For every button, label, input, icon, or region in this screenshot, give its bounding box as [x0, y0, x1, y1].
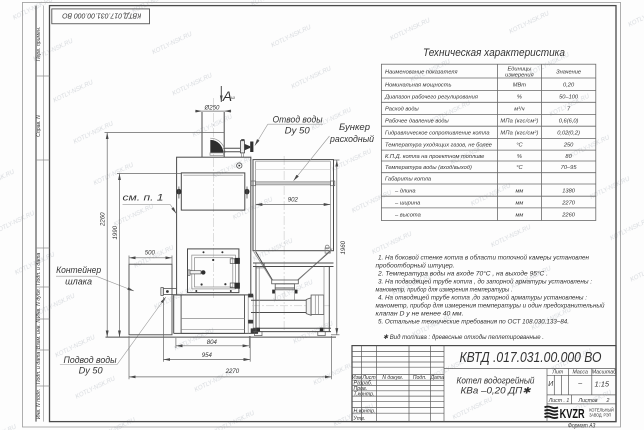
svg-text:2270: 2270: [561, 200, 575, 206]
svg-text:– высота: – высота: [394, 212, 421, 218]
svg-text:5. Остальные технические треб: 5. Остальные технические требования по О…: [378, 317, 569, 325]
svg-text:Масса: Масса: [573, 370, 588, 376]
svg-text:Наименование показателя: Наименование показателя: [385, 70, 458, 76]
svg-text:0,6(6,0): 0,6(6,0): [559, 119, 579, 125]
svg-text:2260: 2260: [561, 212, 575, 218]
svg-text:Масштаб: Масштаб: [592, 370, 617, 376]
svg-text:Листов: Листов: [578, 398, 598, 404]
svg-text:KVZR: KVZR: [560, 406, 585, 421]
svg-text:ЗАВОД. РЭП: ЗАВОД. РЭП: [589, 412, 611, 417]
svg-text:– ширина: – ширина: [394, 200, 420, 206]
svg-text:МВт: МВт: [513, 83, 527, 89]
svg-text:КВТД .017.031.00.000 ВО: КВТД .017.031.00.000 ВО: [460, 349, 602, 366]
svg-text:0,02(0,2): 0,02(0,2): [557, 131, 580, 137]
svg-text:500: 500: [145, 250, 156, 257]
svg-text:Подп. и дата: Подп. и дата: [36, 253, 42, 286]
svg-text:Рабочее давление воды: Рабочее давление воды: [385, 119, 450, 125]
svg-text:Перв. примен.: Перв. примен.: [36, 27, 42, 61]
svg-text:2260: 2260: [100, 212, 107, 227]
svg-text:мм: мм: [515, 212, 523, 218]
svg-text:клапан D у не менее 40 мм.: клапан D у не менее 40 мм.: [376, 310, 464, 317]
svg-text:Dy 50: Dy 50: [79, 366, 104, 376]
svg-text:измерения: измерения: [505, 73, 533, 79]
svg-text:2270: 2270: [225, 368, 240, 375]
svg-text:Dy 50: Dy 50: [285, 125, 311, 135]
svg-text:80: 80: [565, 154, 572, 160]
svg-text:Расход воды: Расход воды: [385, 107, 419, 113]
svg-text:К.П.Д. котла на проектном топл: К.П.Д. котла на проектном топливе: [385, 154, 484, 160]
svg-text:Контейнер: Контейнер: [56, 265, 101, 275]
svg-text:МПа (кгс/см²): МПа (кгс/см²): [500, 131, 538, 137]
svg-text:Номинальная мощность: Номинальная мощность: [385, 83, 451, 89]
svg-text:1990: 1990: [112, 225, 119, 239]
svg-text:КВТД.017.031.00.000 ВО: КВТД.017.031.00.000 ВО: [62, 11, 141, 20]
svg-text:Инв. N дубл.: Инв. N дубл.: [36, 288, 42, 318]
svg-text:–: –: [577, 380, 582, 387]
svg-text:пробоотборный штуцер.: пробоотборный штуцер.: [376, 262, 455, 270]
svg-text:расходный: расходный: [329, 134, 374, 144]
svg-text:°С: °С: [516, 165, 523, 171]
svg-text:N докум.: N докум.: [382, 375, 403, 381]
svg-text:см. п. 1: см. п. 1: [123, 193, 164, 203]
svg-text:МПа (кгс/см²): МПа (кгс/см²): [500, 119, 538, 125]
svg-text:Диапазон рабочего регулировани: Диапазон рабочего регулирования: [384, 95, 478, 101]
svg-text:манометр, прибор для измерени: манометр, прибор для измерения температу…: [376, 301, 605, 309]
svg-text:Температура уходящих газов, не: Температура уходящих газов, не более: [385, 143, 492, 149]
svg-text:%: %: [517, 95, 522, 101]
svg-text:1960: 1960: [340, 240, 347, 254]
svg-text:°С: °С: [516, 143, 523, 149]
svg-text:Лист . 1: Лист . 1: [548, 398, 570, 404]
svg-text:Утв.: Утв.: [354, 416, 366, 422]
svg-text:ш: ш: [231, 95, 235, 100]
svg-text:Подп.: Подп.: [413, 375, 427, 381]
svg-text:Значение: Значение: [556, 70, 581, 76]
svg-text:1380: 1380: [562, 188, 575, 194]
svg-text:Подп. и дата: Подп. и дата: [36, 352, 42, 385]
svg-text:Бункер: Бункер: [339, 122, 370, 132]
svg-text:мм: мм: [515, 200, 523, 206]
svg-text:Справ. N: Справ. N: [36, 115, 42, 137]
svg-text:Формат А3: Формат А3: [568, 423, 596, 430]
svg-text:1. На боковой стенке котла в: 1. На боковой стенке котла в области топ…: [378, 254, 590, 262]
svg-text:804: 804: [207, 339, 218, 346]
svg-text:Инв. N подл.: Инв. N подл.: [36, 389, 42, 419]
svg-text:Котел водогрейный: Котел водогрейный: [457, 376, 535, 386]
svg-text:Н.контр.: Н.контр.: [354, 409, 376, 415]
svg-text:манометр, прибор для измерени: манометр, прибор для измерения температу…: [376, 286, 513, 294]
svg-text:шлака: шлака: [65, 277, 92, 287]
svg-text:3. На подводящей трубе котла: 3. На подводящей трубе котла , до запорн…: [378, 278, 592, 286]
svg-text:2: 2: [606, 398, 610, 404]
svg-text:Лит: Лит: [551, 370, 563, 376]
svg-text:м³/ч: м³/ч: [514, 107, 524, 113]
svg-text:1:15: 1:15: [594, 380, 609, 389]
svg-text:4. На отводящей трубе котла ,: 4. На отводящей трубе котла ,до запорной…: [378, 294, 587, 302]
svg-text:Температура воды (вход/выход): Температура воды (вход/выход): [385, 165, 472, 171]
svg-text:Дата: Дата: [429, 375, 444, 381]
svg-text:50–100: 50–100: [559, 95, 579, 101]
svg-text:Габариты котла: Габариты котла: [385, 177, 431, 183]
svg-text:КВа –0,20 ДП✱: КВа –0,20 ДП✱: [461, 386, 533, 396]
svg-text:70–95: 70–95: [561, 165, 578, 171]
svg-text:Подвод воды: Подвод воды: [64, 355, 117, 365]
svg-text:954: 954: [202, 352, 213, 359]
svg-text:Т.контр.: Т.контр.: [354, 392, 375, 398]
svg-text:902: 902: [288, 196, 299, 203]
svg-text:Техническая характеристика: Техническая характеристика: [423, 47, 565, 59]
svg-text:Отвод воды: Отвод воды: [273, 115, 323, 125]
svg-text:250: 250: [563, 143, 574, 149]
svg-text:мм: мм: [515, 188, 523, 194]
svg-text:КОТЕЛЬНЫЙ: КОТЕЛЬНЫЙ: [589, 405, 614, 412]
svg-text:2. Температура воды на входе: 2. Температура воды на входе 70°С , на в…: [377, 270, 548, 278]
svg-text:✱ Вид топлива : древесные от: ✱ Вид топлива : древесные отходы пеллети…: [383, 333, 544, 341]
svg-text:0,20: 0,20: [563, 83, 575, 89]
svg-text:Ø250: Ø250: [204, 105, 221, 112]
svg-text:%: %: [517, 154, 522, 160]
svg-text:– длина: – длина: [394, 188, 416, 194]
svg-text:Гидравлическое сопротивление к: Гидравлическое сопротивление котла: [385, 131, 490, 137]
svg-text:Взам. инв. N: Взам. инв. N: [36, 319, 42, 349]
